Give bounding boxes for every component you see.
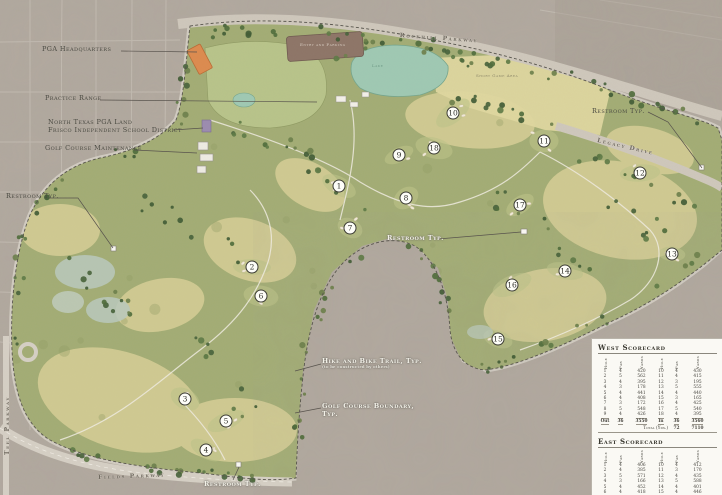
west-scorecard-header-4: Par [674,355,679,369]
hole-marker-16: 16 [506,279,519,292]
east-scorecard-header-4: Par [674,449,679,463]
east-scorecard-cell: 4 [675,490,678,495]
label-restroom-west: Restroom Typ. [6,192,59,200]
hole-marker-1: 1 [333,180,346,193]
east-scorecard: East Scorecard HoleParYardsHoleParYards1… [598,437,717,495]
label-restroom-south: Restroom Typ. [204,480,261,488]
west-scorecard-subtotal-cell: In [658,418,663,425]
label-hike-and-bike-trail: Hike and Bike Trail, Typ.(to be construc… [322,357,422,370]
label-golf-course-boundary: Golf Course Boundary,Typ. [322,402,414,418]
east-scorecard-header-5: Yards [695,449,700,463]
hole-marker-12: 12 [634,167,647,180]
east-scorecard-title: East Scorecard [598,437,717,448]
hole-marker-8: 8 [400,192,413,205]
west-scorecard-subtotal-cell: 36 [674,418,680,425]
hole-marker-4: 4 [200,444,213,457]
east-scorecard-header-3: Hole [659,449,664,463]
east-scorecard-cell: 4 [619,490,622,495]
west-scorecard-header-0: Hole [603,355,608,369]
west-scorecard-header-1: Par [618,355,623,369]
west-scorecard-subtotal-cell: 3550 [636,418,648,425]
label-short-game-area: Short Game Area [476,73,518,78]
east-scorecard-cell: 446 [693,490,701,495]
label-pga-headquarters: PGA Headquarters [42,45,111,53]
label-north-texas-pga-land: North Texas PGA LandFrisco Independent S… [48,118,182,134]
label-teel-parkway: Teel Parkway [4,396,12,455]
hole-marker-5: 5 [220,415,233,428]
label-restroom-northeast: Restroom Typ. [592,107,645,115]
hole-marker-9: 9 [393,149,406,162]
hole-marker-10: 10 [447,107,460,120]
label-restroom-central: Restroom Typ. [387,234,444,242]
hole-marker-3: 3 [179,393,192,406]
label-lake: Lake [372,63,383,68]
west-scorecard-subtotal-cell: 3560 [692,418,704,425]
east-scorecard-cell: 15 [658,490,663,495]
hole-marker-6: 6 [255,290,268,303]
hole-marker-11: 11 [538,135,551,148]
east-scorecard-cell: 418 [637,490,645,495]
west-scorecard-title: West Scorecard [598,343,717,354]
label-golf-course-maintenance: Golf Course Maintenance [45,144,142,152]
west-scorecard-header-5: Yards [695,355,700,369]
label-entry-and-parking: Entry and Parking [300,42,346,47]
label-practice-range: Practice Range [45,94,102,102]
hole-marker-15: 15 [492,333,505,346]
golf-course-master-plan: PGA HeadquartersPractice RangeNorth Texa… [0,0,722,495]
east-scorecard-cell: 6 [604,490,607,495]
east-scorecard-header-2: Yards [639,449,644,463]
east-scorecard-header-0: Hole [603,449,608,463]
hole-marker-18: 18 [428,142,441,155]
west-scorecard-total-row: Total (Yds.)727110 [598,426,717,433]
hole-marker-2: 2 [246,261,259,274]
east-scorecard-header-1: Par [618,449,623,463]
west-scorecard-subtotal-cell: 36 [618,418,624,425]
west-scorecard-header-3: Hole [659,355,664,369]
hole-marker-14: 14 [559,265,572,278]
hole-marker-17: 17 [514,199,527,212]
hole-marker-7: 7 [344,222,357,235]
west-scorecard-subtotal-cell: Out [601,418,610,425]
scorecard-panel: West Scorecard HoleParYardsHoleParYards1… [591,338,722,495]
west-scorecard-header-2: Yards [639,355,644,369]
hole-marker-13: 13 [666,248,679,261]
west-scorecard: West Scorecard HoleParYardsHoleParYards1… [598,343,717,433]
